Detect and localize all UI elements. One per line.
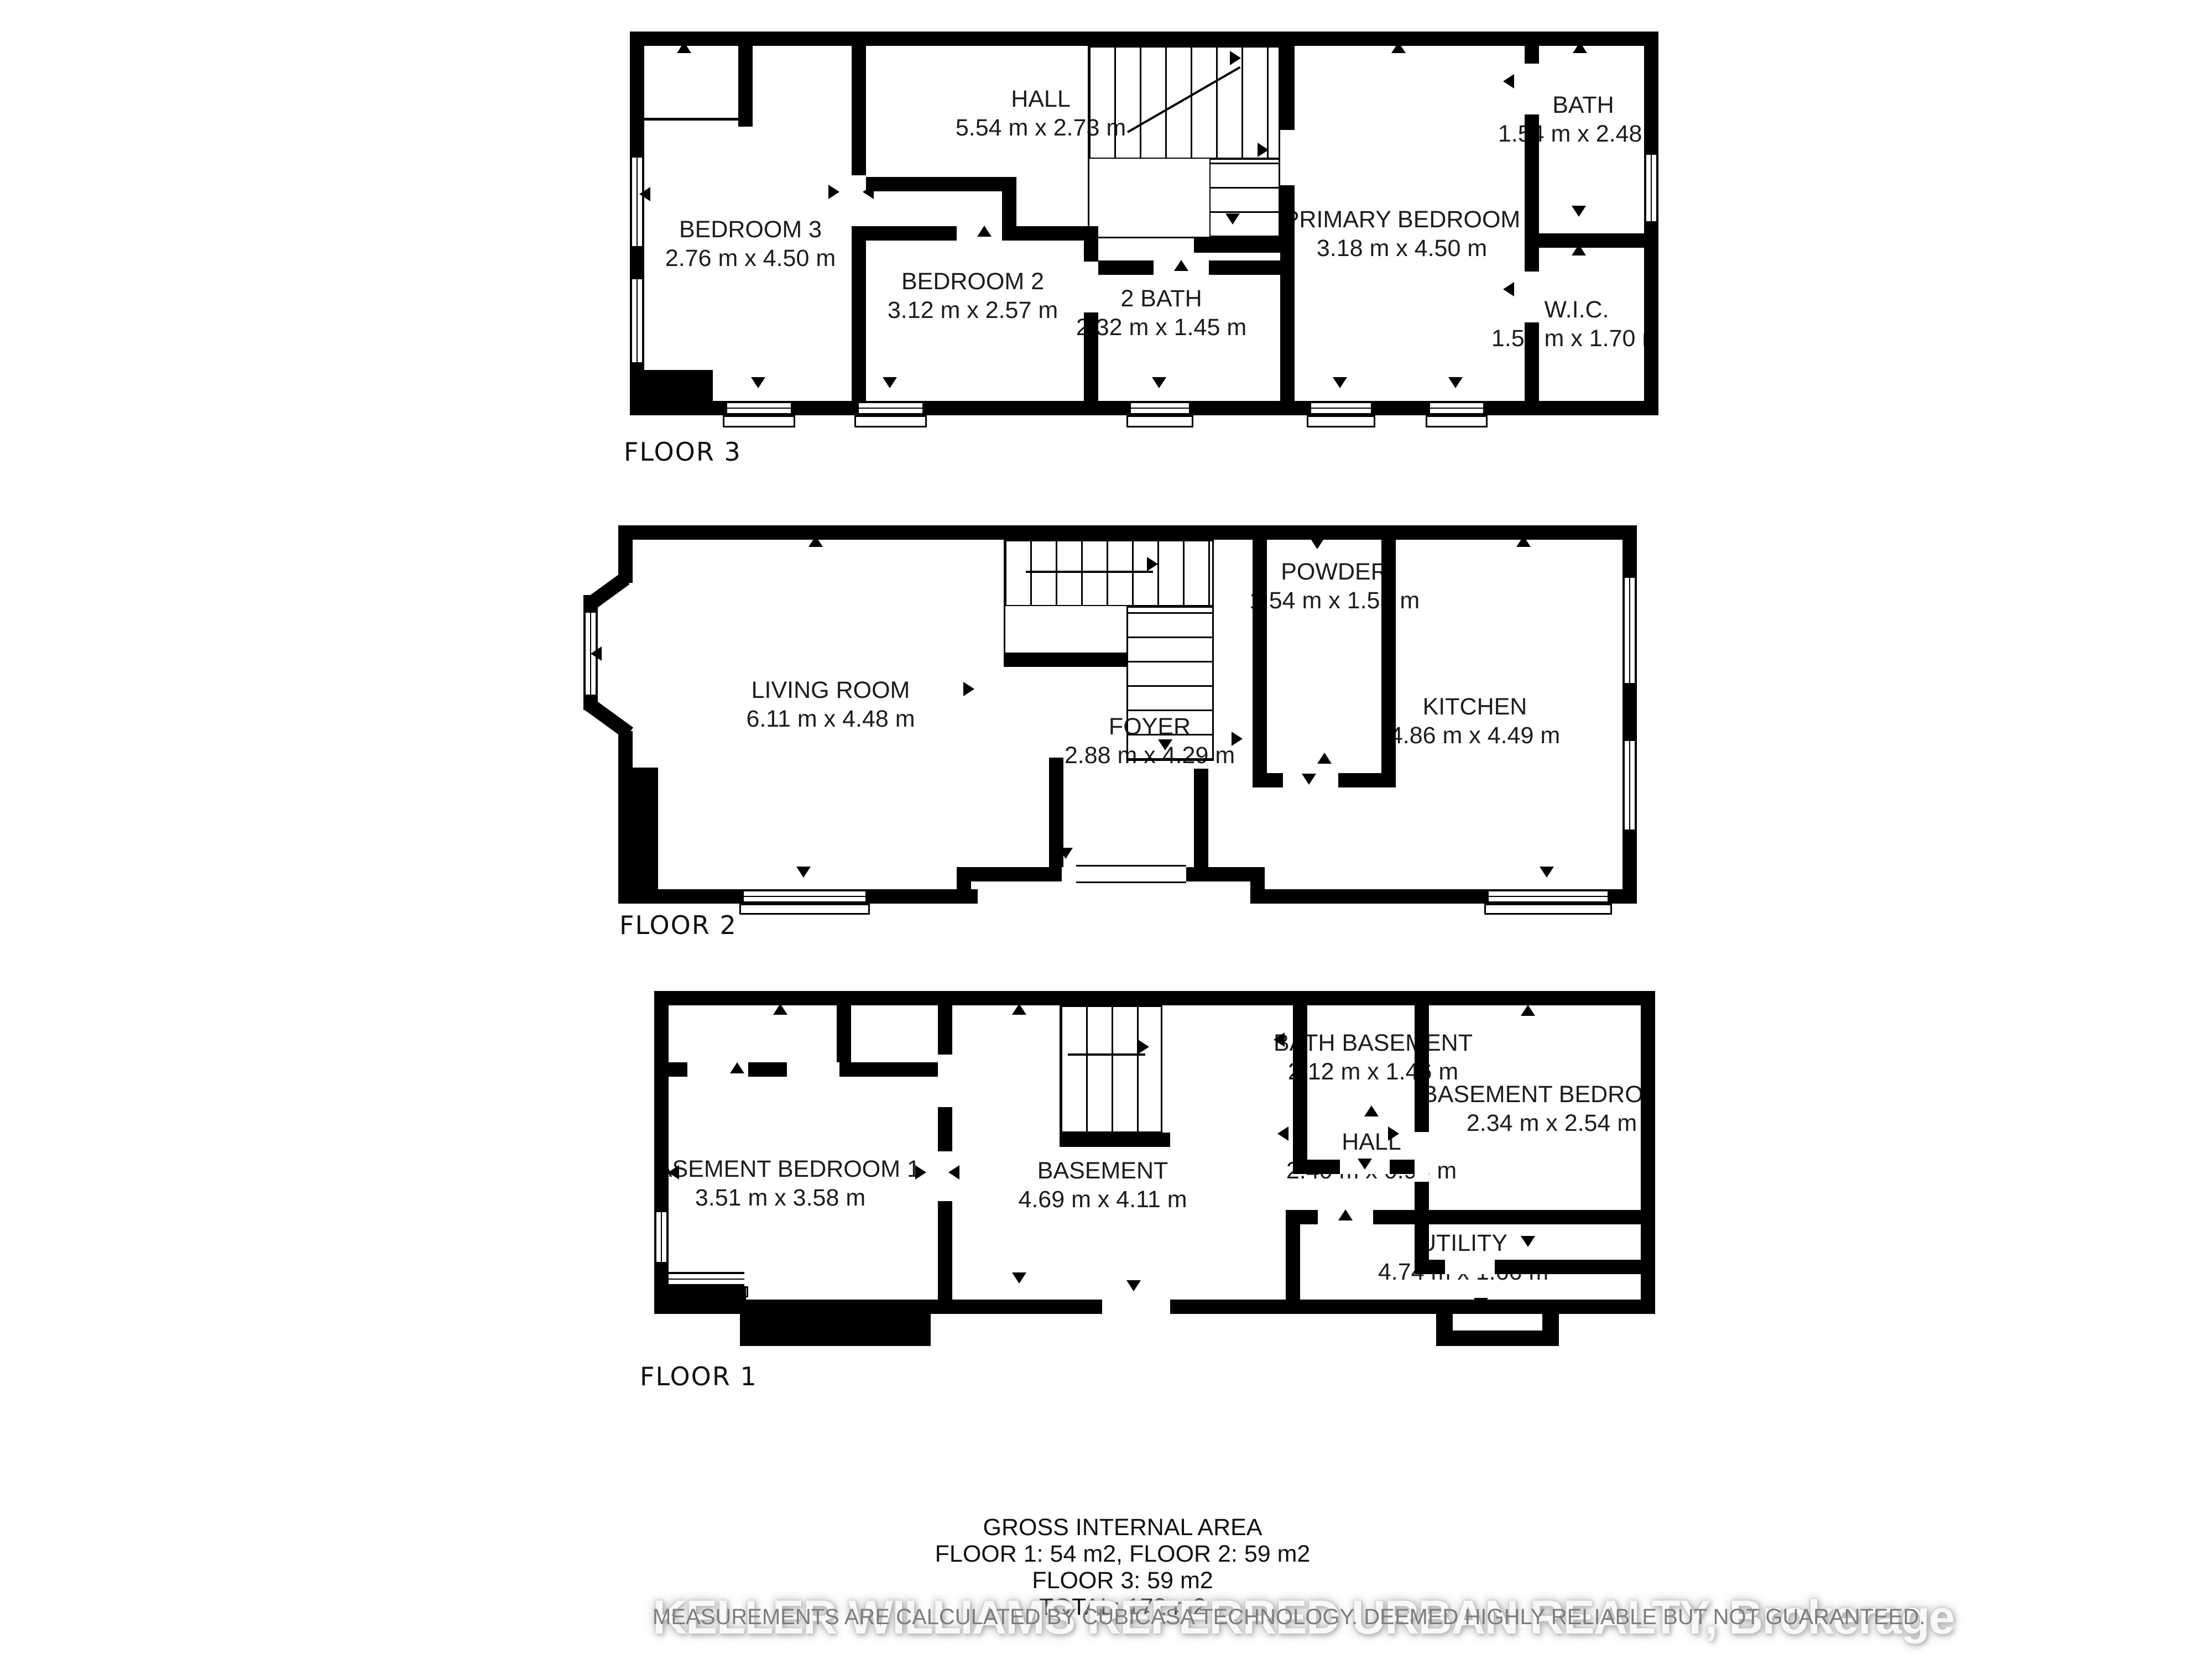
floor-2-plan: LIVING ROOM 6.11 m x 4.48 m FOYER 2.88 m… <box>583 525 1637 919</box>
room-name: LIVING ROOM <box>746 676 915 705</box>
wall <box>669 1286 746 1301</box>
stair-direction-line <box>1026 571 1153 573</box>
direction-arrow <box>883 377 897 388</box>
direction-arrow <box>1012 1004 1026 1015</box>
stairs <box>1060 1005 1162 1133</box>
wall <box>1250 867 1265 904</box>
direction-arrow <box>1364 1105 1379 1117</box>
room-dims: 2.76 m x 4.50 m <box>665 244 836 273</box>
room-label-basement: BASEMENT 4.69 m x 4.11 m <box>1018 1156 1187 1214</box>
summary-title: GROSS INTERNAL AREA <box>735 1514 1510 1541</box>
door-opening <box>1525 272 1539 322</box>
direction-arrow <box>1230 51 1241 65</box>
stairs <box>1004 540 1214 606</box>
wall <box>866 177 1002 191</box>
direction-arrow <box>1503 282 1514 296</box>
direction-arrow <box>808 536 823 547</box>
room-dims: 3.12 m x 2.57 m <box>888 296 1058 325</box>
room-name: BASEMENT <box>1018 1156 1187 1185</box>
direction-arrow <box>1391 42 1406 53</box>
wall <box>1060 1133 1170 1147</box>
direction-arrow <box>668 1165 679 1180</box>
wall <box>1381 525 1396 787</box>
stairs <box>1126 606 1214 761</box>
direction-arrow <box>1012 1272 1026 1284</box>
wall <box>1084 226 1098 415</box>
direction-arrow <box>751 377 765 388</box>
window <box>1489 889 1608 904</box>
direction-arrow <box>1274 1032 1285 1047</box>
direction-arrow <box>639 187 650 201</box>
window <box>1644 155 1658 221</box>
sill-outline <box>1126 415 1193 427</box>
direction-arrow <box>591 646 602 661</box>
window <box>654 1212 669 1262</box>
wall <box>1098 260 1154 275</box>
sill-outline <box>854 415 927 427</box>
wall-line <box>1076 865 1186 867</box>
direction-arrow <box>1358 1159 1372 1170</box>
room-label-2bath: 2 BATH 2.32 m x 1.45 m <box>1076 284 1246 342</box>
wall <box>644 370 713 402</box>
window <box>1131 401 1189 415</box>
direction-arrow <box>1516 536 1531 547</box>
room-label-bedroom2: BEDROOM 2 3.12 m x 2.57 m <box>888 267 1058 325</box>
wall <box>654 991 669 1314</box>
door-opening <box>1102 1300 1170 1314</box>
room-label-basement-bedroom: BASEMENT BEDROOM 2.34 m x 2.54 m <box>1422 1080 1655 1138</box>
wall <box>1012 226 1084 241</box>
wall <box>1641 991 1655 1314</box>
direction-arrow <box>915 1165 926 1180</box>
direction-arrow <box>1521 1005 1535 1016</box>
direction-arrow <box>1232 732 1243 746</box>
floor-3-plan: HALL 5.54 m x 2.73 m BEDROOM 3 2.76 m x … <box>630 32 1658 430</box>
direction-arrow <box>1225 213 1240 225</box>
direction-arrow <box>1540 867 1554 878</box>
wall <box>1293 1005 1307 1174</box>
wall <box>1644 32 1658 415</box>
room-name: BASEMENT BEDROOM <box>1422 1080 1655 1109</box>
wall <box>654 991 1655 1005</box>
window <box>1623 741 1637 830</box>
stairs <box>1209 159 1280 238</box>
room-label-living-room: LIVING ROOM 6.11 m x 4.48 m <box>746 676 915 733</box>
direction-arrow <box>1333 377 1347 388</box>
room-label-bath-f3: BATH 1.54 m x 2.48 m <box>1498 91 1658 148</box>
room-label-wic: W.I.C. 1.54 m x 1.70 m <box>1491 295 1658 353</box>
direction-arrow <box>1258 143 1269 157</box>
room-dims: 4.69 m x 4.11 m <box>1018 1185 1187 1214</box>
direction-arrow <box>1388 1126 1399 1141</box>
window <box>1623 578 1637 683</box>
direction-arrow <box>1152 377 1166 388</box>
wall <box>1280 46 1295 415</box>
direction-arrow <box>977 226 992 237</box>
direction-arrow <box>773 1004 787 1015</box>
room-name: PRIMARY BEDROOM <box>1284 205 1521 234</box>
direction-arrow <box>1573 42 1587 53</box>
door-opening <box>1525 64 1539 114</box>
room-dims: 3.18 m x 4.50 m <box>1284 234 1521 263</box>
wall-angled <box>583 572 630 613</box>
room-label-bedroom3: BEDROOM 3 2.76 m x 4.50 m <box>665 215 836 273</box>
room-dims: 2.32 m x 1.45 m <box>1076 313 1246 342</box>
window <box>744 889 865 904</box>
room-dims: 1.54 m x 2.48 m <box>1498 119 1658 148</box>
wall <box>618 768 658 904</box>
direction-arrow <box>677 42 691 53</box>
wall <box>740 1314 931 1346</box>
room-name: BASEMENT BEDROOM 1 <box>654 1155 920 1183</box>
window <box>859 401 922 415</box>
wall <box>1209 260 1280 275</box>
sill-outline <box>723 415 795 427</box>
window <box>727 401 791 415</box>
footer: KELLER WILLIAMS REFERRED URBAN REALTY, B… <box>653 1590 1681 1651</box>
sill-outline <box>739 904 870 915</box>
room-dims: 3.51 m x 3.58 m <box>654 1183 920 1212</box>
stairs <box>1088 46 1280 159</box>
direction-arrow <box>1147 557 1158 571</box>
room-label-hall-f1: HALL 2.40 m x 0.98 m <box>1286 1128 1457 1185</box>
direction-arrow <box>948 1165 959 1180</box>
room-name: BEDROOM 2 <box>888 267 1058 296</box>
wall <box>1194 238 1280 253</box>
stair-direction-line <box>1068 1053 1145 1056</box>
disclaimer-text: MEASUREMENTS ARE CALCULATED BY CUBICASA … <box>653 1605 1653 1630</box>
direction-arrow <box>863 185 874 199</box>
room-dims: 4.86 m x 4.49 m <box>1390 721 1560 750</box>
wall-line <box>1076 881 1186 883</box>
direction-arrow <box>1302 774 1316 785</box>
door-opening <box>1415 1132 1429 1182</box>
summary-floors-1-2: FLOOR 1: 54 m2, FLOOR 2: 59 m2 <box>735 1541 1510 1567</box>
floor-2-label: FLOOR 2 <box>619 910 737 940</box>
wall <box>957 867 1062 881</box>
room-name: W.I.C. <box>1491 295 1658 324</box>
sill-outline <box>1484 904 1612 915</box>
direction-arrow <box>1158 739 1172 750</box>
sill-outline <box>1426 415 1488 427</box>
room-label-primary-bedroom: PRIMARY BEDROOM 3.18 m x 4.50 m <box>1284 205 1521 263</box>
door-opening <box>852 175 866 226</box>
floor-1-plan: BASEMENT BEDROOM 1 3.51 m x 3.58 m BASEM… <box>654 991 1655 1360</box>
summary-floor-3: FLOOR 3: 59 m2 <box>735 1567 1510 1594</box>
room-name: HALL <box>1286 1128 1457 1156</box>
wall <box>630 32 1658 46</box>
wall <box>957 867 971 904</box>
direction-arrow <box>828 185 839 199</box>
sill-outline <box>1307 415 1375 427</box>
window <box>669 1272 744 1286</box>
direction-arrow <box>1448 377 1463 388</box>
wall <box>1253 525 1267 787</box>
wall-angled <box>583 697 633 739</box>
direction-arrow <box>1126 1280 1141 1291</box>
window <box>1311 401 1371 415</box>
direction-arrow <box>1572 244 1586 255</box>
direction-arrow <box>1310 538 1324 549</box>
direction-arrow <box>1521 1236 1535 1247</box>
wall <box>618 525 1637 540</box>
direction-arrow <box>1317 753 1332 764</box>
direction-arrow <box>796 867 811 878</box>
window <box>630 279 644 362</box>
wall <box>866 226 957 241</box>
window <box>1430 401 1483 415</box>
room-dims: 6.11 m x 4.48 m <box>746 705 915 733</box>
direction-arrow <box>1572 206 1586 217</box>
direction-arrow <box>1503 74 1514 88</box>
room-label-basement-bedroom1: BASEMENT BEDROOM 1 3.51 m x 3.58 m <box>654 1155 920 1212</box>
door-opening <box>1453 1314 1542 1331</box>
door-opening <box>1445 1260 1495 1274</box>
door-opening <box>1084 262 1098 312</box>
room-label-kitchen: KITCHEN 4.86 m x 4.49 m <box>1390 692 1560 750</box>
room-dims: 2.34 m x 2.54 m <box>1422 1109 1655 1138</box>
wall <box>1286 1210 1300 1314</box>
floor-3-label: FLOOR 3 <box>624 437 742 467</box>
door-opening <box>1280 130 1295 185</box>
wall <box>1004 653 1126 667</box>
direction-arrow <box>1174 260 1188 271</box>
direction-arrow <box>1474 1298 1488 1309</box>
door-opening <box>1076 867 1186 881</box>
page: { "floors": [ { "label": "FLOOR 3", "roo… <box>0 0 2212 1659</box>
wall <box>738 46 753 127</box>
direction-arrow <box>1338 1209 1353 1220</box>
direction-arrow <box>1058 848 1073 859</box>
direction-arrow <box>1277 1126 1288 1141</box>
room-name: BEDROOM 3 <box>665 215 836 244</box>
direction-arrow <box>1138 1040 1149 1054</box>
room-name: BATH <box>1498 91 1658 119</box>
room-dims: 1.54 m x 1.70 m <box>1491 324 1658 353</box>
window <box>630 158 644 246</box>
room-name: KITCHEN <box>1390 692 1560 721</box>
wall <box>1194 769 1208 867</box>
room-name: 2 BATH <box>1076 284 1246 313</box>
wall-line <box>644 118 738 121</box>
floor-1-label: FLOOR 1 <box>640 1361 758 1391</box>
door-opening <box>938 1055 952 1107</box>
wall <box>1539 233 1658 248</box>
direction-arrow <box>963 682 974 696</box>
direction-arrow <box>730 1062 744 1073</box>
door-opening <box>787 1062 839 1077</box>
